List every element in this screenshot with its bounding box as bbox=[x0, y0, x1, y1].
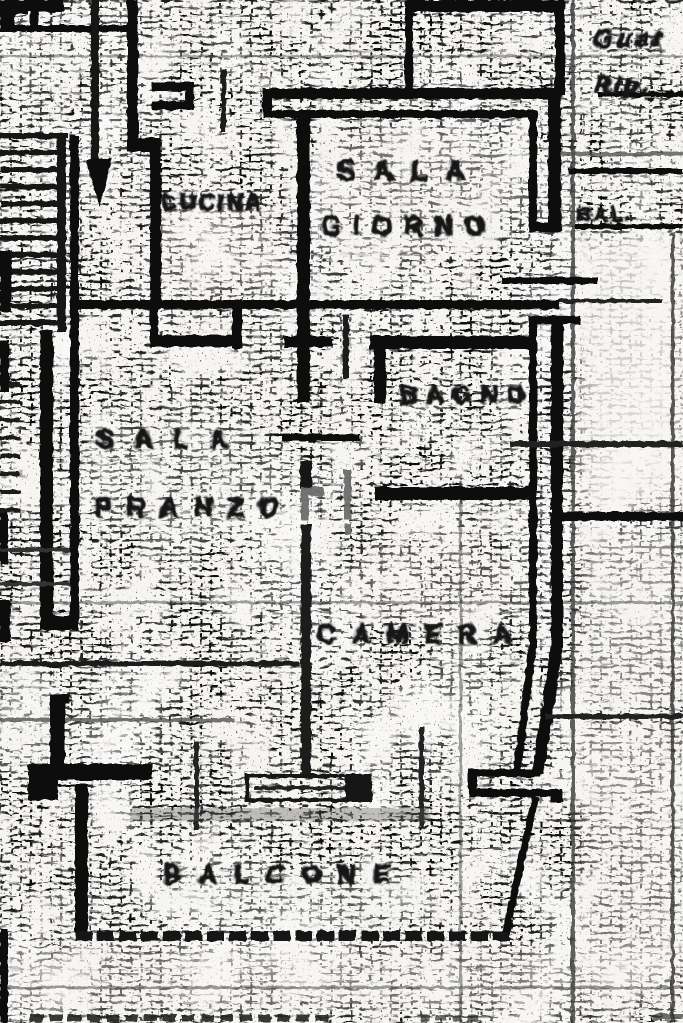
svg-text:GIORNO: GIORNO bbox=[321, 211, 497, 241]
svg-text:CAMERA: CAMERA bbox=[317, 619, 527, 649]
svg-text:Guar: Guar bbox=[593, 23, 666, 53]
svg-text:SALA: SALA bbox=[97, 424, 248, 454]
svg-text:BAL.: BAL. bbox=[577, 204, 632, 226]
svg-text:PRANZO: PRANZO bbox=[94, 492, 294, 522]
svg-text:BAGNO: BAGNO bbox=[400, 382, 534, 409]
svg-text:BALCONE: BALCONE bbox=[164, 861, 407, 889]
svg-text:Rip.: Rip. bbox=[594, 72, 651, 99]
svg-text:CUCINA: CUCINA bbox=[161, 190, 265, 215]
svg-text:SALA: SALA bbox=[337, 156, 483, 186]
